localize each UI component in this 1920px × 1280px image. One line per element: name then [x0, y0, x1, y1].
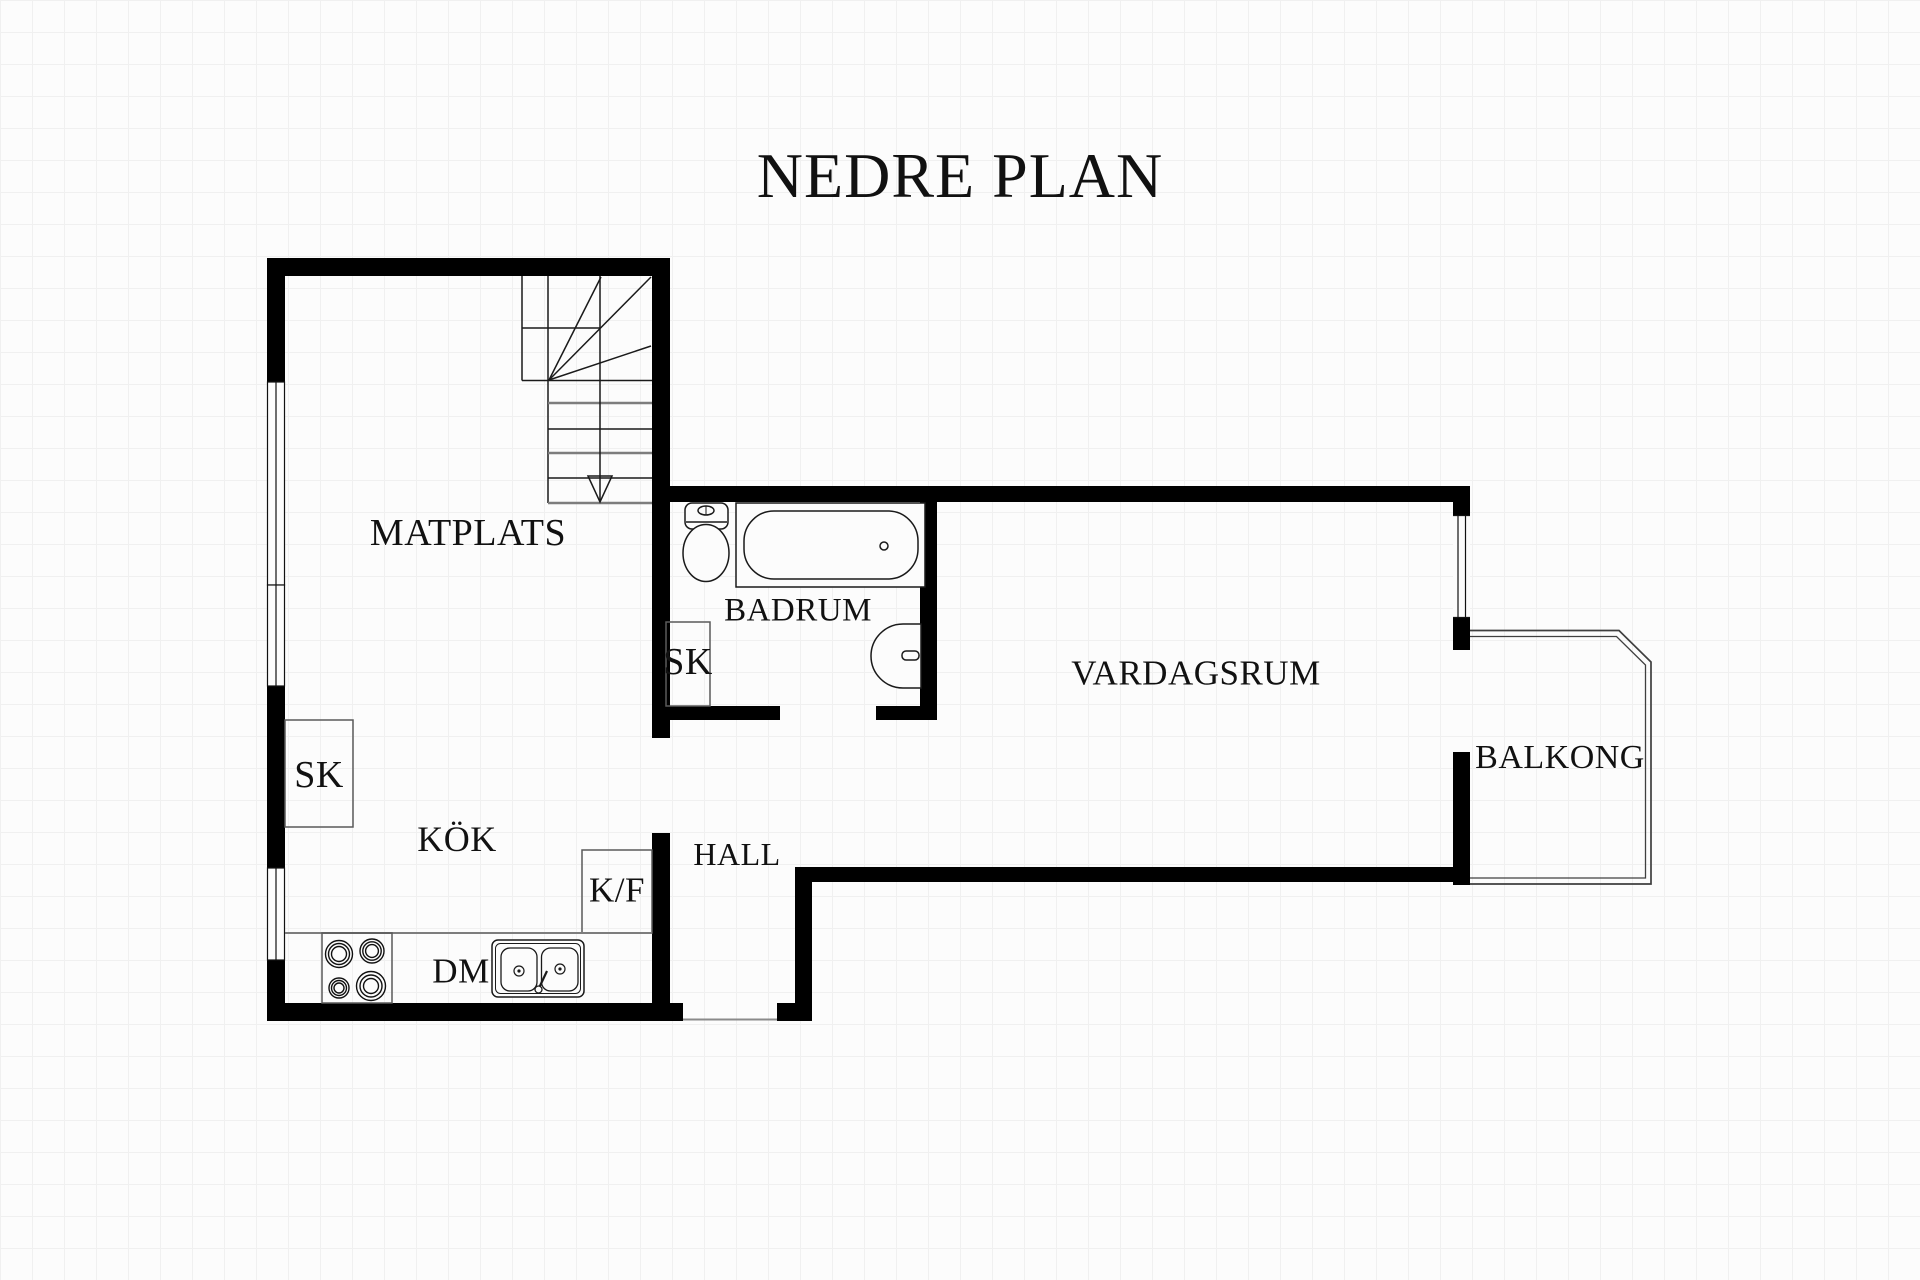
stove-burners-icon [326, 939, 386, 1001]
wall-segment [652, 833, 670, 1021]
wall-segment [1453, 487, 1470, 515]
wall-segment [795, 867, 812, 1021]
closet-boxes [285, 622, 710, 933]
faucet-icon [902, 651, 919, 660]
wall-segment [652, 486, 1470, 502]
wall-segment [267, 686, 285, 868]
closet-label-kitchen: SK [294, 756, 344, 794]
washbasin-icon [871, 624, 921, 688]
walls [267, 258, 1470, 1021]
room-label-badrum: BADRUM [724, 595, 872, 628]
fridge-freezer-label: K/F [589, 873, 645, 908]
plan-title: NEDRE PLAN [757, 139, 1163, 213]
wall-segment [1453, 752, 1470, 885]
drain-icon [880, 542, 888, 550]
floor-plan-page: NEDRE PLAN MATPLATS BADRUM SK VARDAGSRUM… [0, 0, 1920, 1280]
kitchen-sink-icon [492, 940, 584, 997]
room-label-kok: KÖK [417, 821, 497, 857]
room-label-matplats: MATPLATS [370, 514, 566, 552]
wall-segment [267, 258, 285, 382]
room-label-hall: HALL [693, 838, 780, 870]
wall-segment [267, 1003, 683, 1021]
window-icon [1453, 515, 1470, 618]
bathtub-icon [736, 503, 925, 587]
wall-segment [652, 706, 780, 720]
toilet-icon [683, 503, 729, 582]
dishwasher-label: DM [432, 954, 489, 989]
closet-label-bathroom: SK [663, 643, 713, 681]
wall-segment [795, 867, 1470, 882]
room-label-vardagsrum: VARDAGSRUM [1071, 656, 1320, 691]
wall-segment [1453, 618, 1470, 650]
room-label-balkong: BALKONG [1475, 741, 1645, 775]
staircase [522, 276, 652, 503]
wall-segment [267, 258, 670, 276]
